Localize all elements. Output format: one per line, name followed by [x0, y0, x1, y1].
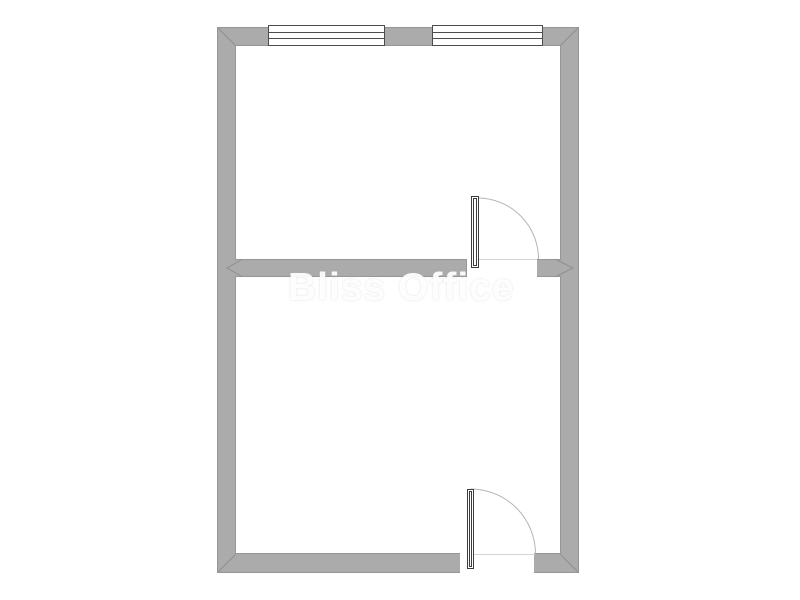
- interior-wall-left-segment: [235, 259, 467, 277]
- door-1-leaf: [471, 196, 479, 268]
- door-2-leaf-inner-line: [469, 491, 472, 567]
- floorplan-image: Bliss Office: [0, 0, 800, 600]
- door-2-leaf: [467, 489, 474, 569]
- window-pane-line: [433, 38, 542, 39]
- door-1-leaf-inner-line: [473, 198, 477, 266]
- window-2-symbol: [432, 25, 543, 46]
- window-pane-line: [433, 32, 542, 33]
- window-1-symbol: [268, 25, 385, 46]
- window-pane-line: [269, 32, 384, 33]
- window-pane-line: [269, 38, 384, 39]
- exterior-walls: [218, 28, 578, 572]
- interior-wall-right-stub: [537, 259, 561, 277]
